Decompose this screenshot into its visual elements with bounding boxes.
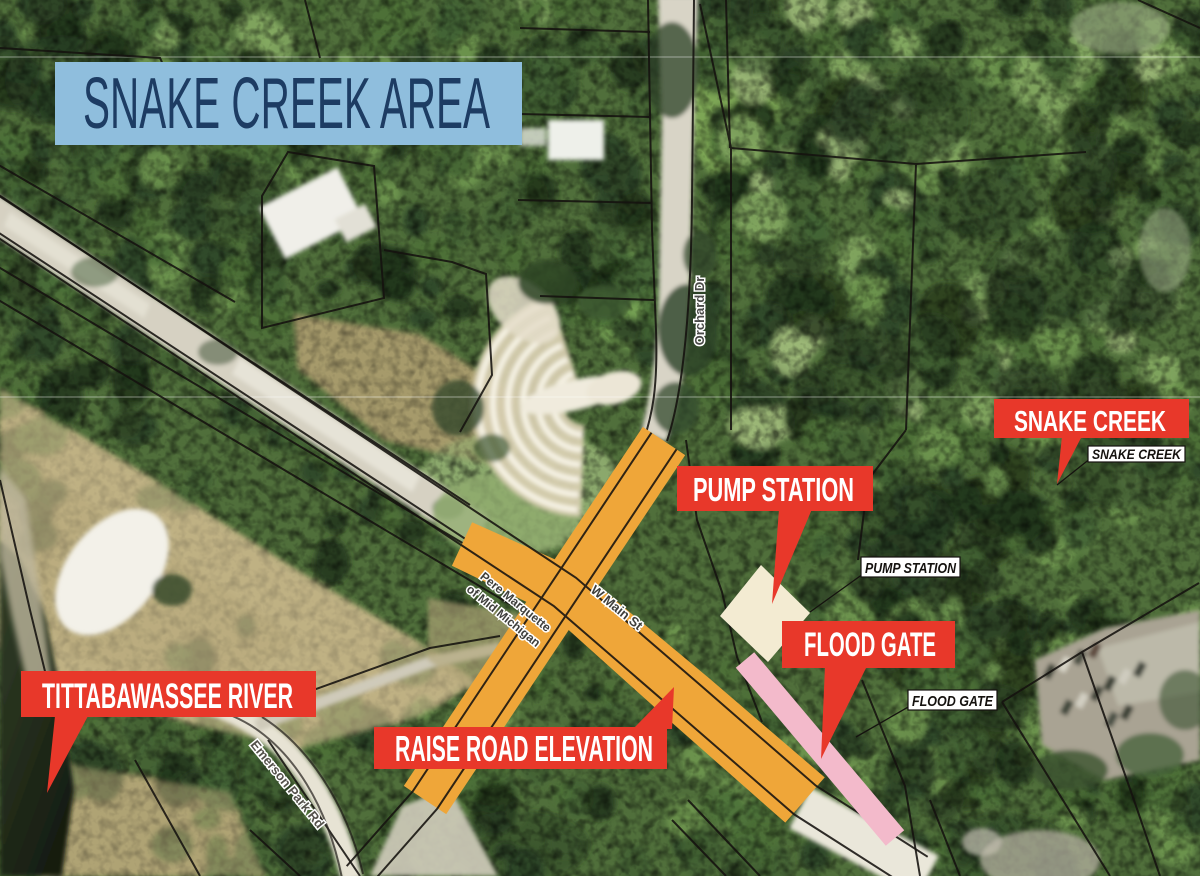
svg-text:SNAKE CREEK: SNAKE CREEK — [1092, 446, 1182, 462]
svg-text:RAISE ROAD ELEVATION: RAISE ROAD ELEVATION — [395, 728, 653, 769]
svg-text:Orchard Dr: Orchard Dr — [692, 277, 707, 346]
svg-text:TITTABAWASSEE RIVER: TITTABAWASSEE RIVER — [42, 677, 293, 716]
svg-text:FLOOD GATE: FLOOD GATE — [804, 626, 936, 664]
svg-text:SNAKE CREEK AREA: SNAKE CREEK AREA — [83, 64, 490, 144]
svg-text:FLOOD GATE: FLOOD GATE — [912, 693, 994, 710]
svg-text:SNAKE CREEK: SNAKE CREEK — [1014, 406, 1166, 438]
svg-text:PUMP STATION: PUMP STATION — [693, 471, 854, 508]
svg-text:PUMP STATION: PUMP STATION — [865, 560, 957, 577]
